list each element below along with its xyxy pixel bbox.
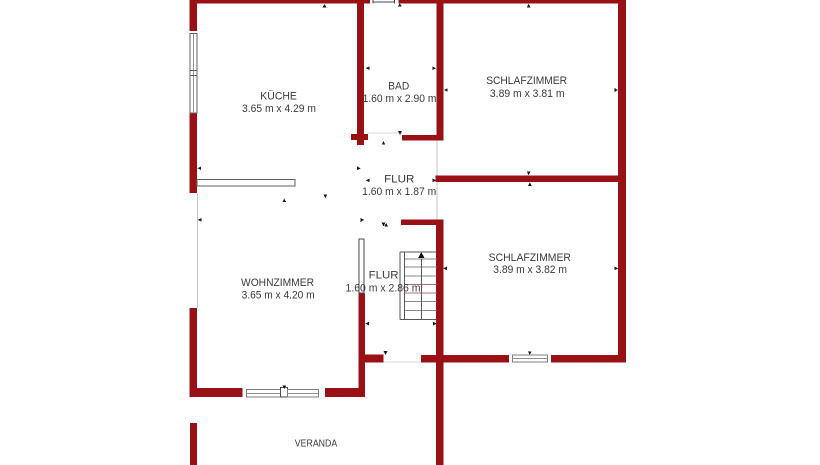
svg-text:1.60 m x 1.87 m: 1.60 m x 1.87 m: [362, 186, 436, 198]
svg-text:1.60 m x 2.86 m: 1.60 m x 2.86 m: [346, 283, 421, 295]
svg-text:WOHNZIMMER: WOHNZIMMER: [241, 277, 314, 289]
svg-text:VERANDA: VERANDA: [295, 438, 338, 449]
svg-text:3.65 m x 4.29 m: 3.65 m x 4.29 m: [242, 103, 316, 115]
svg-text:SCHLAFZIMMER: SCHLAFZIMMER: [486, 75, 567, 87]
svg-text:BAD: BAD: [388, 81, 409, 93]
svg-text:SCHLAFZIMMER: SCHLAFZIMMER: [489, 252, 571, 264]
svg-text:3.89 m x 3.82 m: 3.89 m x 3.82 m: [493, 264, 567, 276]
svg-text:3.65 m x 4.20 m: 3.65 m x 4.20 m: [242, 290, 315, 302]
svg-text:KÜCHE: KÜCHE: [260, 90, 297, 102]
svg-text:FLUR: FLUR: [369, 270, 399, 282]
svg-text:3.89 m x 3.81 m: 3.89 m x 3.81 m: [490, 88, 565, 100]
svg-text:FLUR: FLUR: [384, 173, 414, 185]
svg-text:1.60 m x 2.90 m: 1.60 m x 2.90 m: [363, 93, 437, 105]
